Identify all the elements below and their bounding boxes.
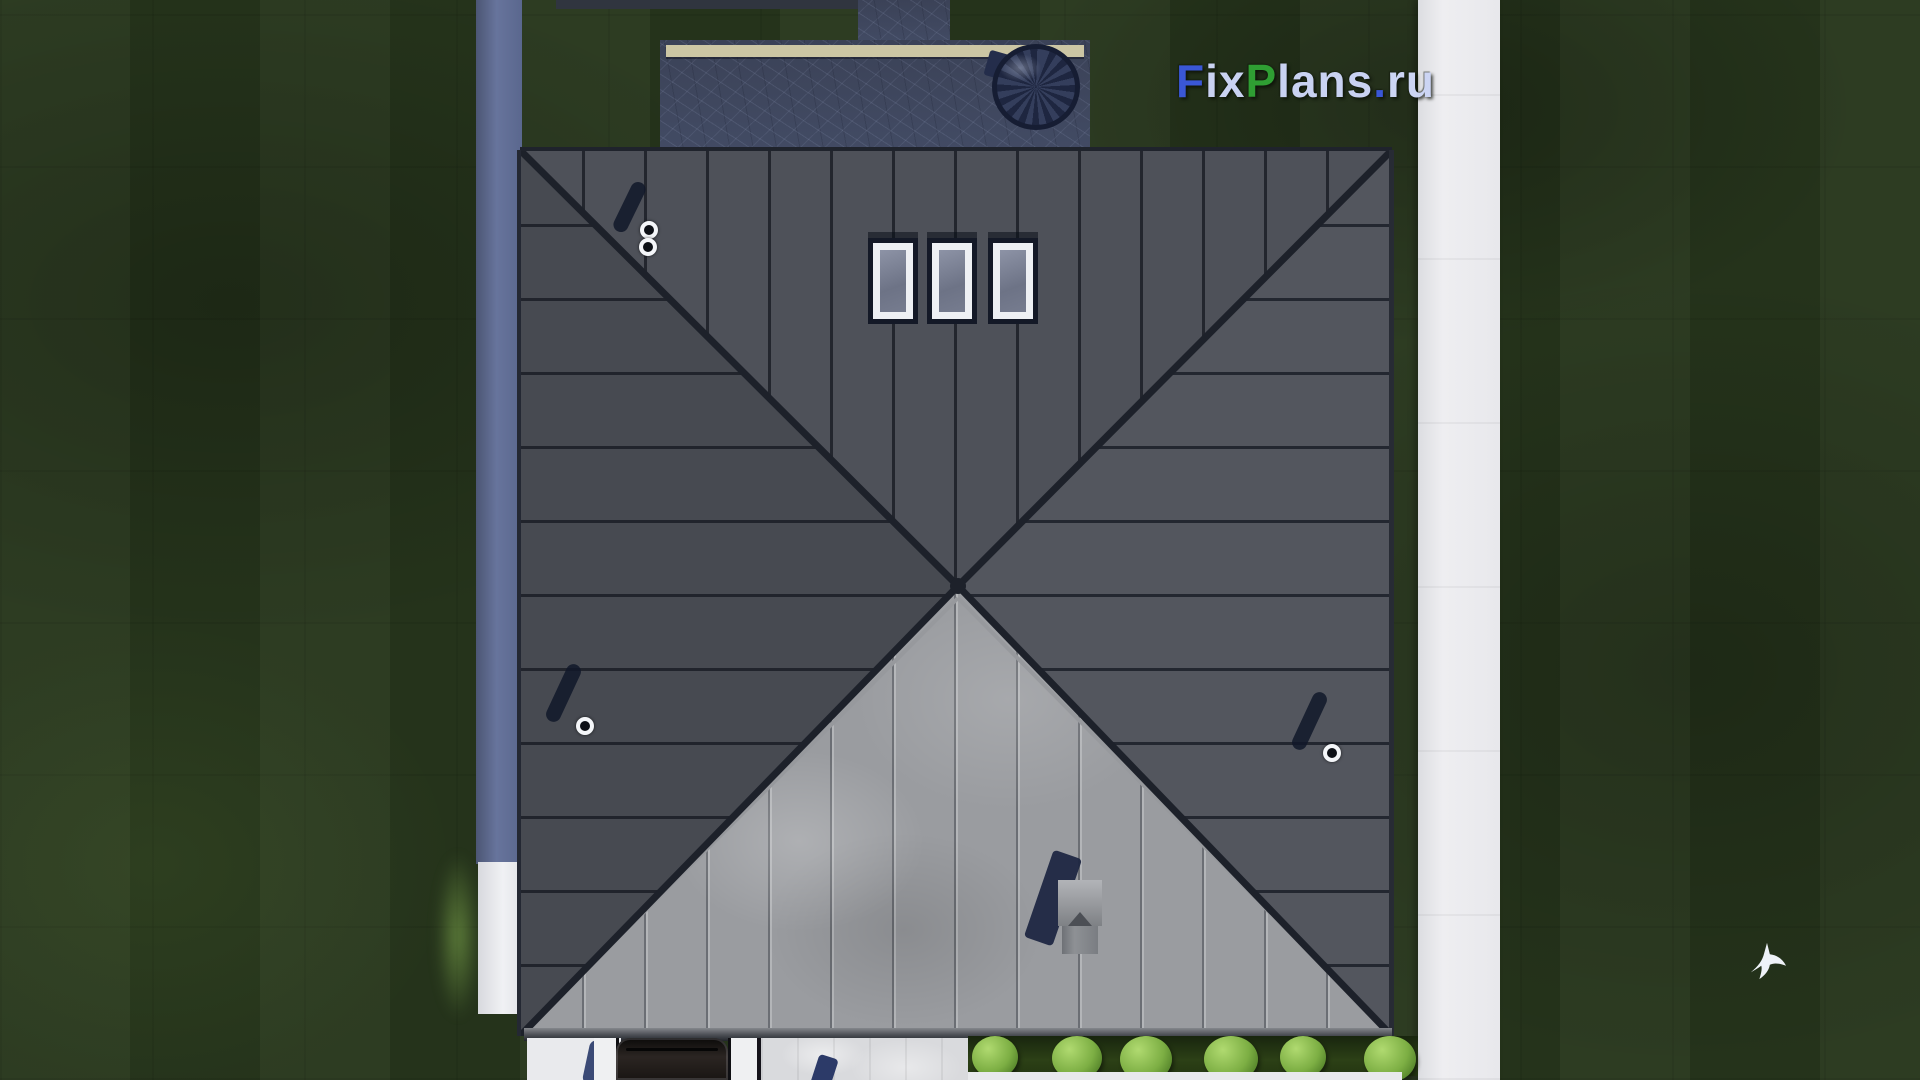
skylight-glass	[880, 250, 906, 312]
watermark-letter: P	[1245, 55, 1277, 107]
sunlit-grass-glow	[436, 852, 480, 1020]
hedge-curb	[968, 1072, 1402, 1080]
hip-roof	[520, 150, 1392, 1036]
watermark-letter: F	[1176, 55, 1205, 107]
bird-icon	[1746, 940, 1788, 980]
hedge-row	[968, 1036, 1418, 1076]
roof-eave-west	[517, 150, 521, 1036]
watermark-logo: FixPlans.ru	[1176, 54, 1435, 108]
left-wall-walkway	[476, 0, 522, 864]
skylight-glass	[939, 250, 965, 312]
watermark-letter: ru	[1387, 55, 1435, 107]
top-fence-bar	[556, 0, 862, 9]
parked-car-roof	[616, 1038, 728, 1080]
roof-apex	[950, 578, 966, 594]
watermark-letter: .	[1373, 55, 1387, 107]
watermark-letter: lans	[1277, 55, 1373, 107]
roof-eave-east	[1389, 150, 1394, 1036]
skylight-2	[927, 238, 977, 324]
skylight-glass	[1000, 250, 1026, 312]
roof-vent-pipe	[1323, 744, 1341, 762]
roof-vent-pipe	[640, 221, 658, 239]
roof-vent-pipe	[639, 238, 657, 256]
skylight-1	[868, 238, 918, 324]
render-scene: FixPlans.ru	[0, 0, 1920, 1080]
watermark-letter: ix	[1205, 55, 1245, 107]
chimney-cap	[1058, 880, 1102, 926]
front-paving	[761, 1038, 968, 1080]
garden-path-top	[858, 0, 950, 44]
skylight-3	[988, 238, 1038, 324]
roof-vent-pipe	[576, 717, 594, 735]
patio-umbrella	[992, 44, 1080, 130]
roof-eave-north	[520, 147, 1392, 151]
right-white-path	[1418, 0, 1500, 1080]
carport-pillar-right	[728, 1038, 761, 1080]
